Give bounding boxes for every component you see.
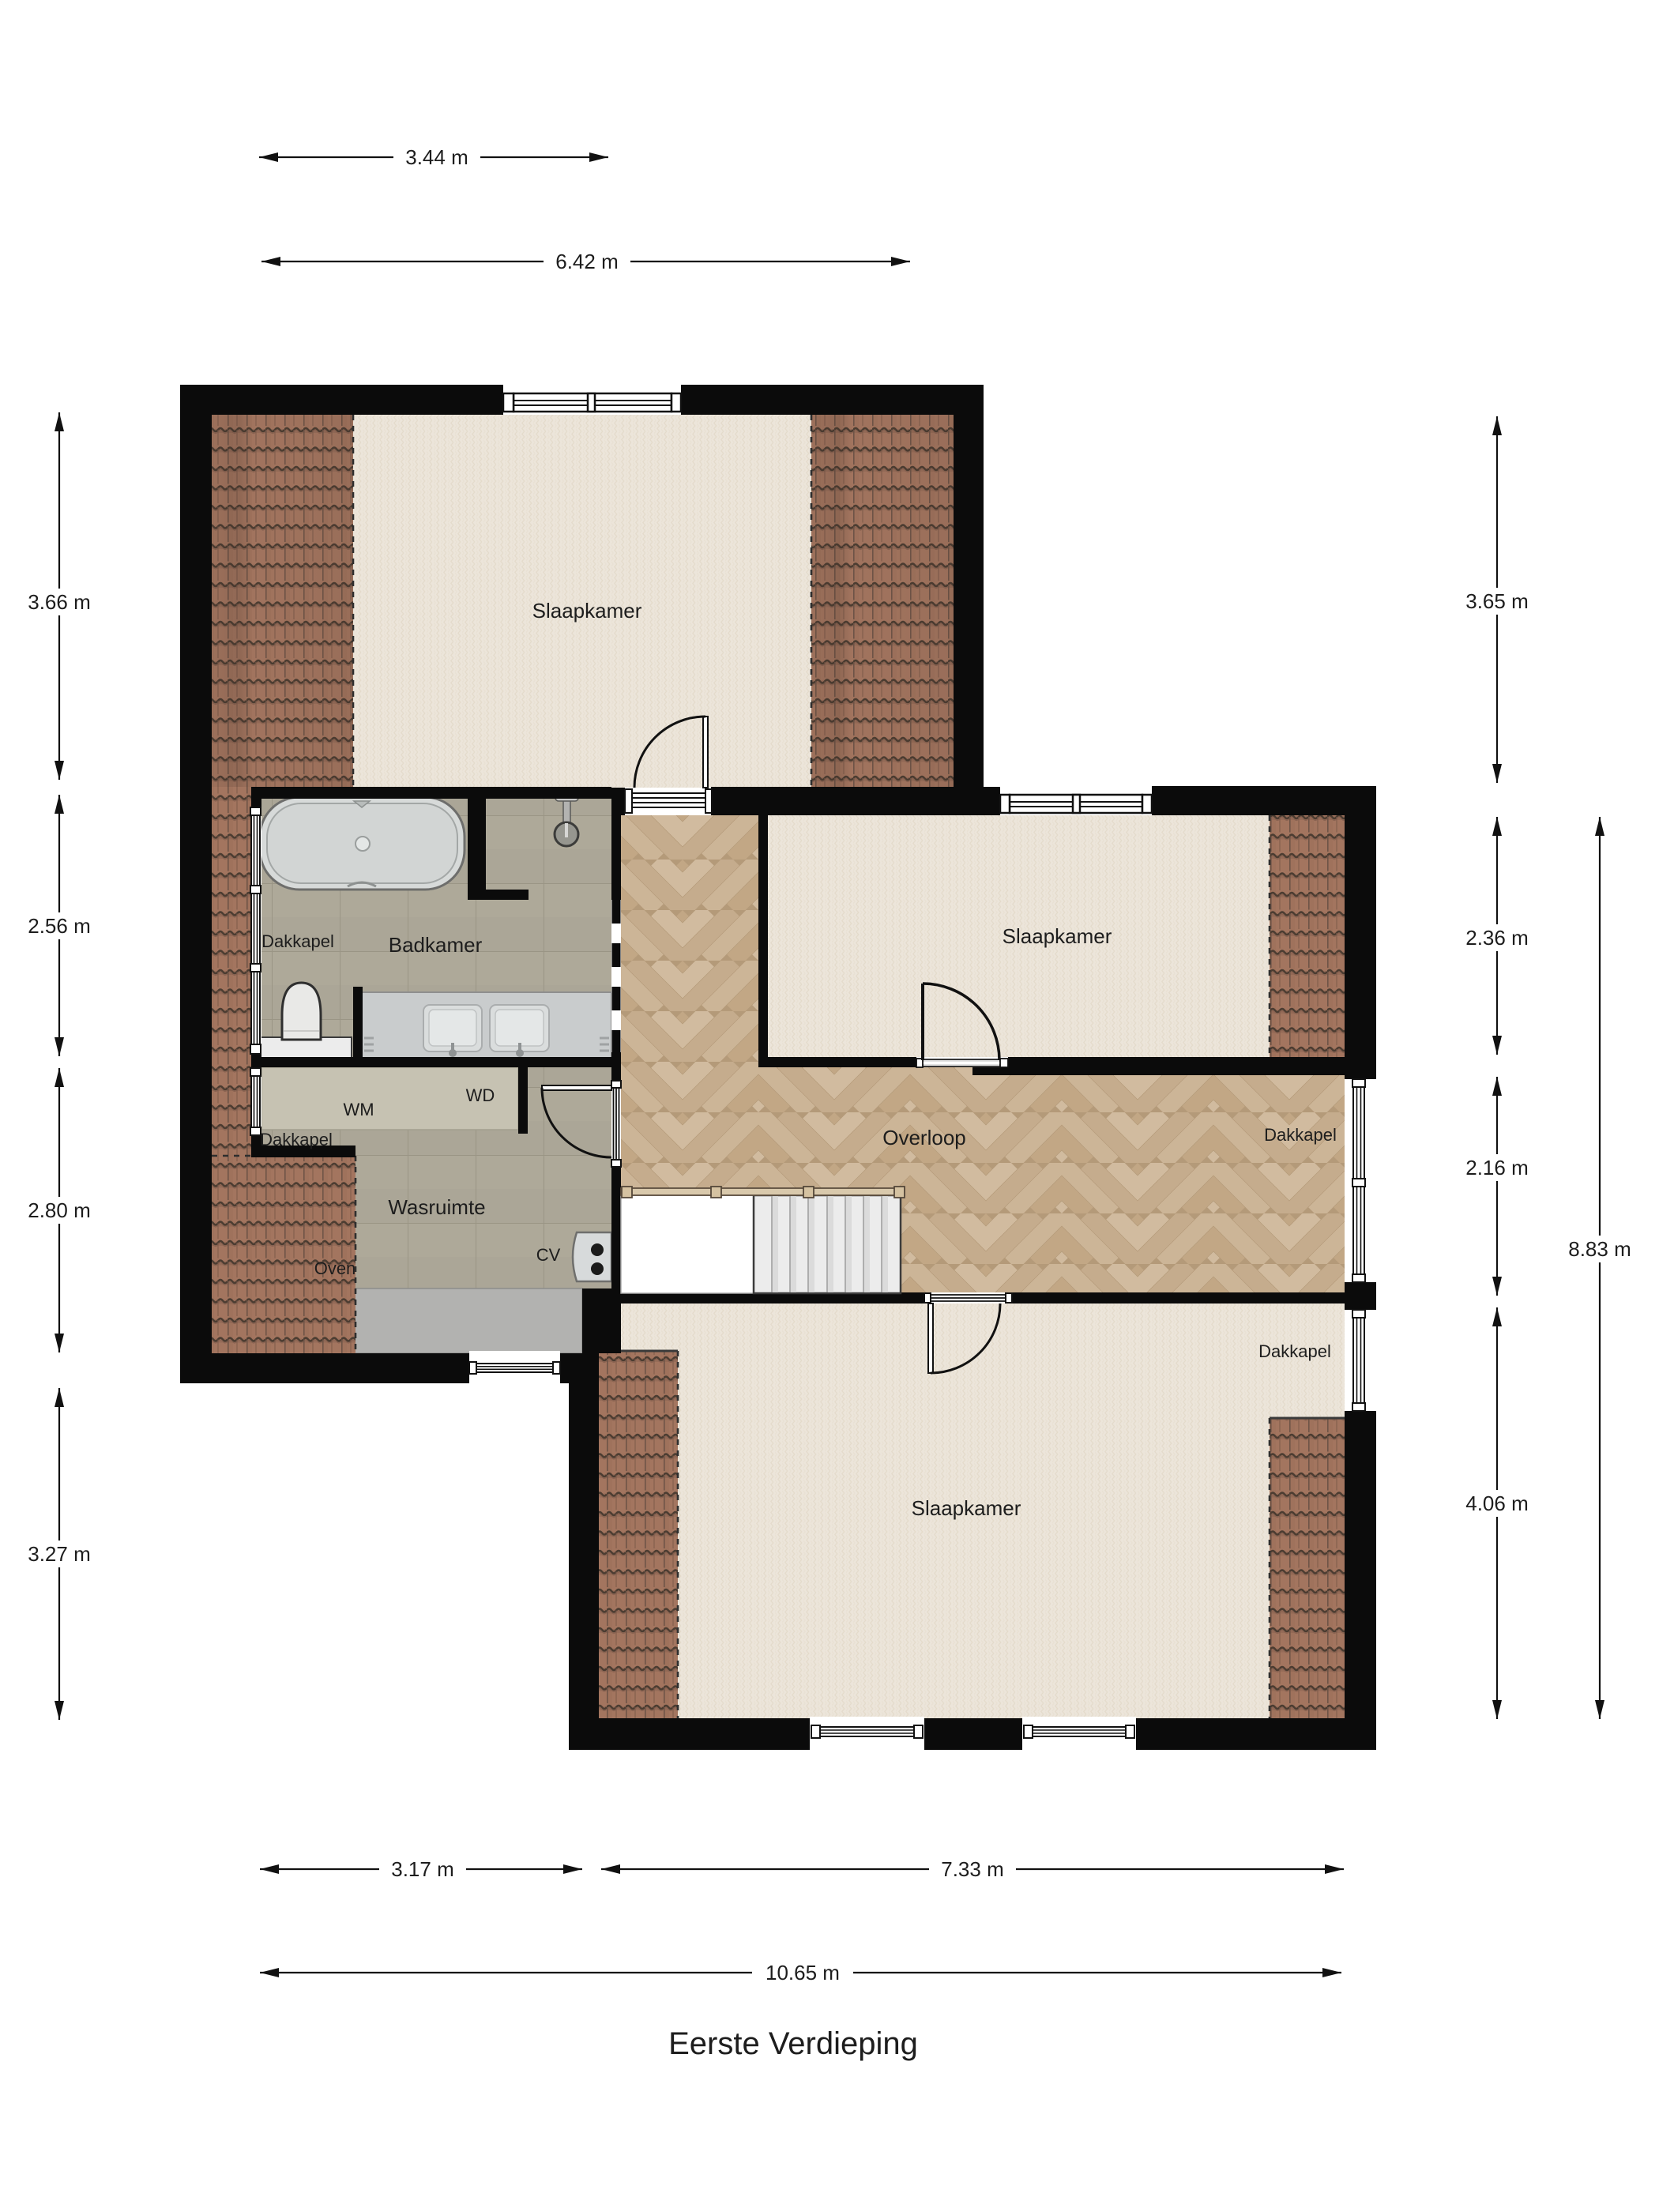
svg-text:3.17 m: 3.17 m [391,1857,454,1881]
svg-text:Dakkapel: Dakkapel [261,931,334,951]
svg-text:Dakkapel: Dakkapel [1264,1125,1337,1145]
svg-text:8.83 m: 8.83 m [1568,1237,1631,1261]
svg-text:2.80 m: 2.80 m [28,1198,91,1222]
svg-text:WM: WM [343,1100,374,1119]
svg-text:7.33 m: 7.33 m [941,1857,1004,1881]
svg-text:6.42 m: 6.42 m [555,250,619,273]
svg-text:Oven: Oven [314,1258,356,1278]
svg-text:Wasruimte: Wasruimte [388,1195,485,1219]
svg-text:Slaapkamer: Slaapkamer [912,1496,1021,1520]
svg-text:Eerste Verdieping: Eerste Verdieping [668,2026,918,2061]
svg-text:Slaapkamer: Slaapkamer [532,599,642,623]
svg-text:Slaapkamer: Slaapkamer [1003,924,1112,948]
svg-text:2.36 m: 2.36 m [1465,926,1529,950]
svg-text:Badkamer: Badkamer [389,933,483,957]
svg-text:Overloop: Overloop [882,1126,966,1149]
svg-text:10.65 m: 10.65 m [766,1961,840,1984]
svg-text:2.56 m: 2.56 m [28,914,91,938]
svg-text:4.06 m: 4.06 m [1465,1492,1529,1515]
svg-text:3.44 m: 3.44 m [405,145,468,169]
svg-text:3.65 m: 3.65 m [1465,589,1529,613]
svg-text:CV: CV [536,1245,561,1265]
svg-text:3.66 m: 3.66 m [28,590,91,614]
svg-text:WD: WD [466,1085,495,1105]
svg-text:2.16 m: 2.16 m [1465,1156,1529,1179]
svg-text:Dakkapel: Dakkapel [260,1130,333,1149]
svg-text:3.27 m: 3.27 m [28,1542,91,1566]
svg-text:Dakkapel: Dakkapel [1258,1341,1331,1361]
